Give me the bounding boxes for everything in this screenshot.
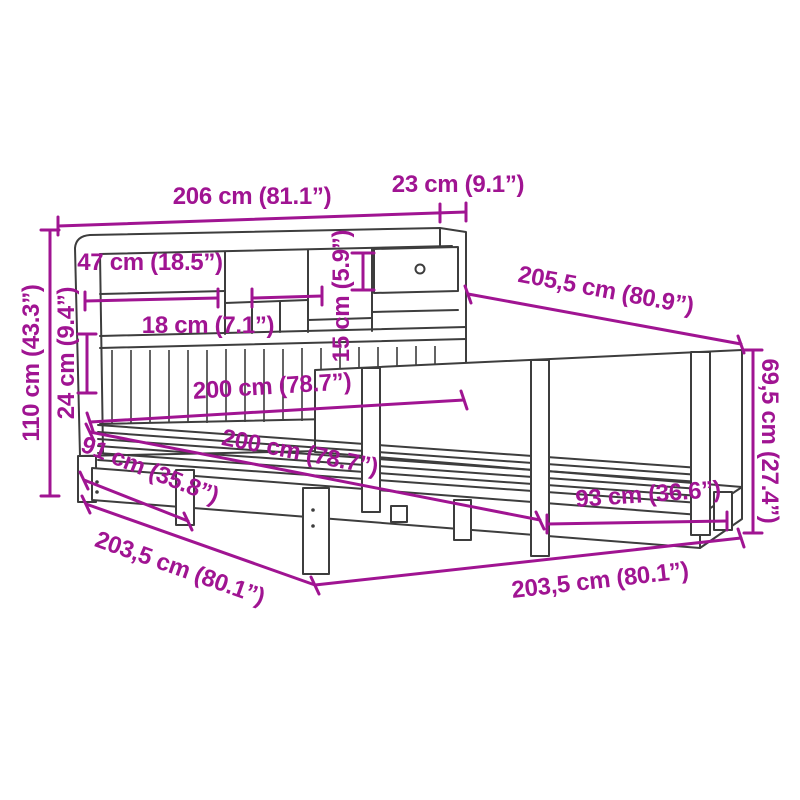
dim-label-base-rail-height: 24 cm (9.4”) [53,287,80,419]
dim-label-overall-length: 205,5 cm (80.9”) [516,261,696,320]
bed-dimension-diagram: 206 cm (81.1”) 23 cm (9.1”) 47 cm (18.5”… [0,0,800,800]
dim-label-headboard-width: 206 cm (81.1”) [173,183,332,210]
panel-post [691,352,710,535]
dim-label-side-panel-height: 69,5 cm (27.4”) [756,359,783,524]
panel-post [362,368,380,512]
bed-leg [391,506,407,522]
bed-leg [303,488,329,574]
dim-label-frame-length-front: 203,5 cm (80.1”) [510,557,690,604]
dim-label-small-compartment-width: 18 cm (7.1”) [142,312,274,339]
dim-label-drawer-compartment-height: 15 cm (5.9”) [328,230,355,362]
dim-label-headboard-depth: 23 cm (9.1”) [392,171,524,198]
product-dimension-image: 206 cm (81.1”) 23 cm (9.1”) 47 cm (18.5”… [0,0,800,800]
dim-label-headboard-height: 110 cm (43.3”) [18,284,45,441]
dim-label-shelf-compartment-width: 47 cm (18.5”) [77,249,223,276]
